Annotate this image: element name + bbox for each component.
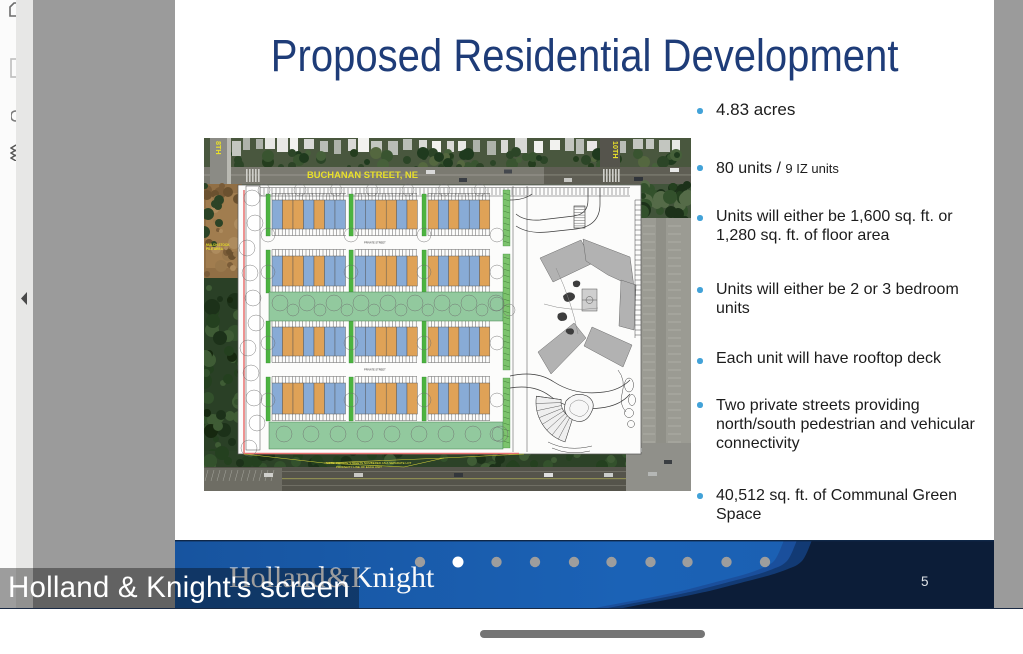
svg-text:10TH: 10TH [611,141,620,159]
svg-text:PILE AREA: PILE AREA [206,247,224,251]
svg-text:BUCHANAN STREET, NE: BUCHANAN STREET, NE [307,169,418,180]
svg-text:PROPERTY LINE OF EACH UNIT: PROPERTY LINE OF EACH UNIT [336,465,382,469]
svg-text:PRIVATE STREET: PRIVATE STREET [364,368,386,372]
svg-text:PRIVATE STREET: PRIVATE STREET [364,241,386,245]
svg-text:8TH: 8TH [214,141,223,155]
svg-text:5: 5 [921,574,929,589]
